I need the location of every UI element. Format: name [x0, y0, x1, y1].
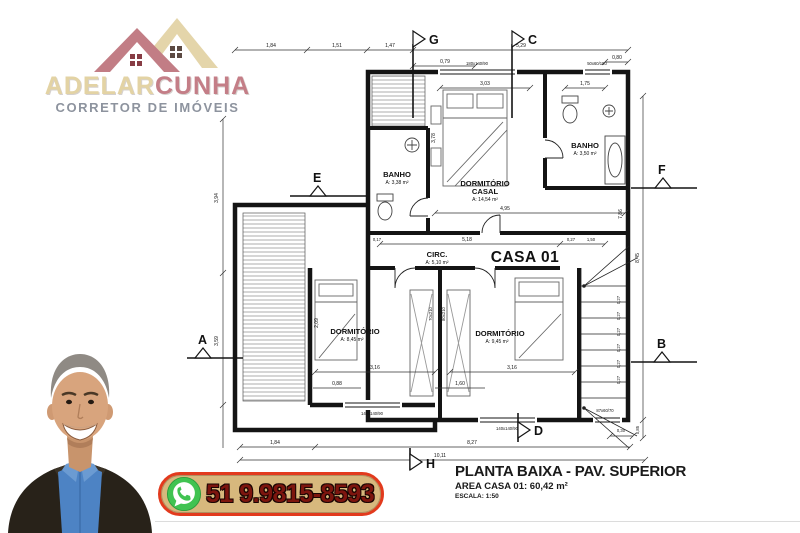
unit-label: CASA 01 [491, 249, 559, 266]
dim-label: 1,51 [332, 43, 342, 49]
dim-label: 1,47 [385, 43, 395, 49]
phone-number: 51 9.9815-8593 [206, 480, 374, 509]
dim-label: 1,50 [587, 237, 596, 242]
dim-label: 3,03 [480, 81, 490, 87]
room-name: DORMITÓRIO [330, 327, 379, 336]
room-area: A: 5,10 m² [425, 260, 448, 266]
dim-label: 1,60 [455, 381, 465, 387]
dim-label: 8,27 [467, 440, 477, 446]
brand-name-primary: ADELAR [45, 72, 155, 100]
dim-label: 3,59 [214, 336, 220, 346]
marker-letter: A [198, 333, 207, 347]
title-block: PLANTA BAIXA - PAV. SUPERIOR AREA CASA 0… [455, 463, 686, 500]
stair-dim: 0,27 [616, 311, 621, 320]
window-size-label: 87x60/70 [596, 408, 614, 413]
dim-label: 0,85 [635, 425, 640, 434]
room-name: CIRC. [427, 250, 448, 259]
room-area: A: 14,54 m² [472, 197, 498, 203]
plan-scale: ESCALA: 1:50 [455, 493, 686, 500]
room-area: A: 3,38 m² [385, 180, 408, 186]
dim-label: 0,88 [332, 381, 342, 387]
window-size-label: 140x140/90 [496, 426, 519, 431]
dim-label: 3,78 [431, 133, 437, 143]
dim-label: 0,79 [440, 59, 450, 65]
plan-title: PLANTA BAIXA - PAV. SUPERIOR [455, 463, 686, 480]
room-name: DORMITÓRIO [475, 329, 524, 338]
dim-label: 0,17 [373, 237, 382, 242]
marker-letter: F [658, 163, 666, 177]
room-area: A: 8,45 m² [340, 337, 363, 343]
dim-label: 5,18 [462, 237, 472, 243]
stair-dim: 0,27 [616, 343, 621, 352]
flyer-page: { "brand": { "name_primary": "ADELAR", "… [0, 0, 800, 533]
whatsapp-icon [166, 476, 202, 512]
marker-letter: B [657, 337, 666, 351]
dim-label: 1,84 [270, 440, 280, 446]
stair-dim: 0,27 [616, 295, 621, 304]
dim-label: 0,30 [617, 428, 626, 433]
realtor-photo [0, 320, 160, 533]
stair-dim: 0,27 [616, 327, 621, 336]
window-size-label: 140x140/90 [361, 411, 384, 416]
room-area: A: 3,50 m² [573, 151, 596, 157]
stair-dim: 0,27 [616, 375, 621, 384]
stair-step-dims: 0,27 0,27 0,27 0,27 0,27 0,27 [616, 295, 621, 384]
marker-letter: H [426, 457, 435, 471]
whatsapp-phone-banner: 51 9.9815-8593 [158, 472, 384, 516]
window-size-label: 180x140/90 [466, 61, 489, 66]
bottom-divider [155, 521, 800, 522]
room-name: BANHO [571, 141, 599, 150]
marker-letter: D [534, 424, 543, 438]
stair-dim: 0,27 [616, 359, 621, 368]
dim-label: 10,11 [434, 453, 446, 459]
dim-label: 3,16 [507, 365, 517, 371]
marker-letter: G [429, 33, 439, 47]
dim-label: 2,09 [314, 318, 320, 328]
marker-letter: C [528, 33, 537, 47]
room-name: CASAL [472, 187, 499, 196]
dim-label: 4,95 [500, 206, 510, 212]
plan-area: AREA CASA 01: 60,42 m² [455, 481, 686, 492]
floor-plan: 0,27 0,27 0,27 0,27 0,27 0,27 1,84 1,51 … [185, 18, 800, 478]
room-name: BANHO [383, 170, 411, 179]
room-area: A: 9,45 m² [485, 339, 508, 345]
dim-label: 0,27 [567, 237, 576, 242]
dim-label: 1,75 [580, 81, 590, 87]
marker-letter: E [313, 171, 321, 185]
deck-hatch [243, 76, 425, 401]
door-size-label: 80x210 [441, 306, 446, 320]
window-size-label: 50x60/150 [587, 61, 607, 66]
dim-label: 3,94 [214, 193, 220, 203]
dim-label: 3,16 [370, 365, 380, 371]
dim-label: 0,80 [612, 55, 622, 61]
dim-label: 7,86 [618, 209, 624, 219]
dim-label: 1,84 [266, 43, 276, 49]
dim-label: 8,45 [635, 253, 641, 263]
door-size-label: 70x210 [428, 306, 433, 320]
